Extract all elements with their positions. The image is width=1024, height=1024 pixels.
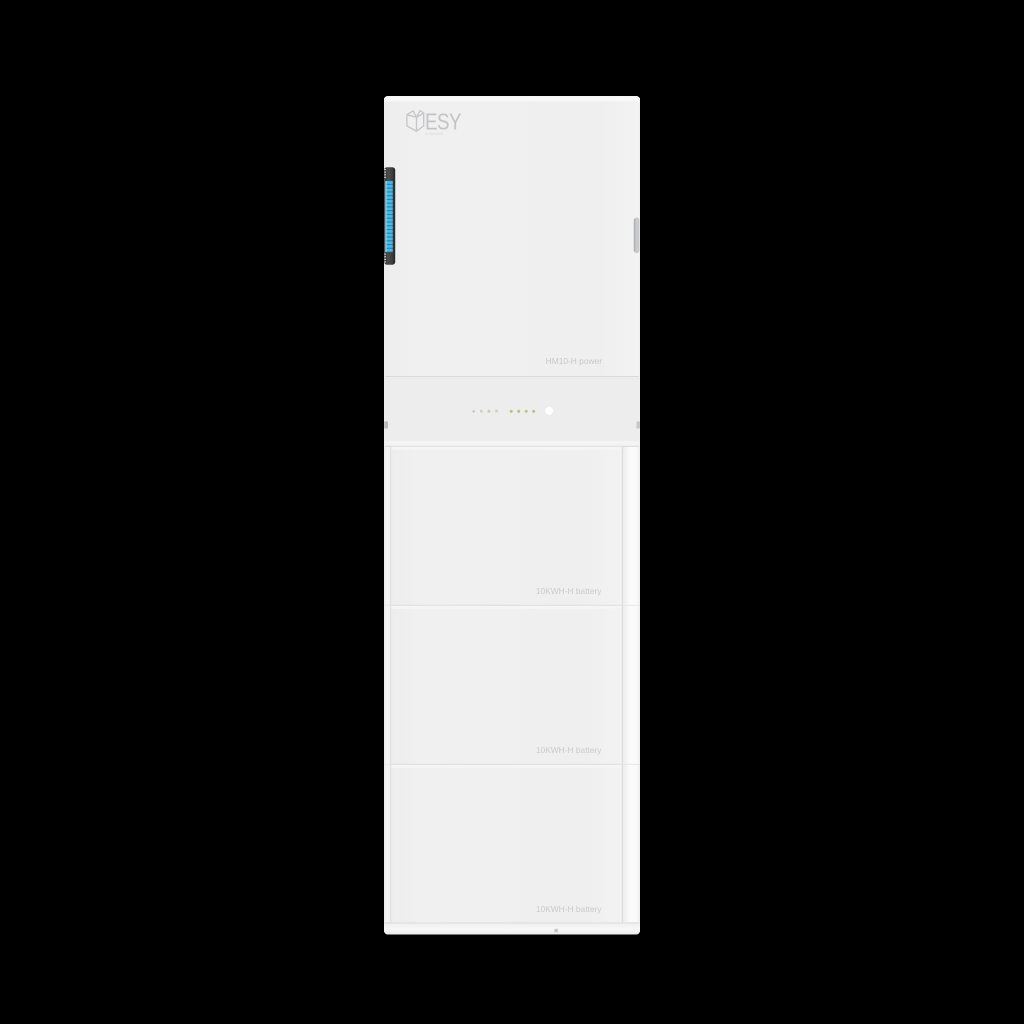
svg-text:10KWH-H battery: 10KWH-H battery <box>536 745 602 755</box>
svg-text:HM10-H power: HM10-H power <box>546 356 603 366</box>
svg-text:10KWH-H battery: 10KWH-H battery <box>536 586 602 596</box>
svg-text:10KWH-H battery: 10KWH-H battery <box>536 904 602 914</box>
svg-text:ESY: ESY <box>425 109 461 135</box>
svg-text:SUNHOME: SUNHOME <box>425 132 444 136</box>
